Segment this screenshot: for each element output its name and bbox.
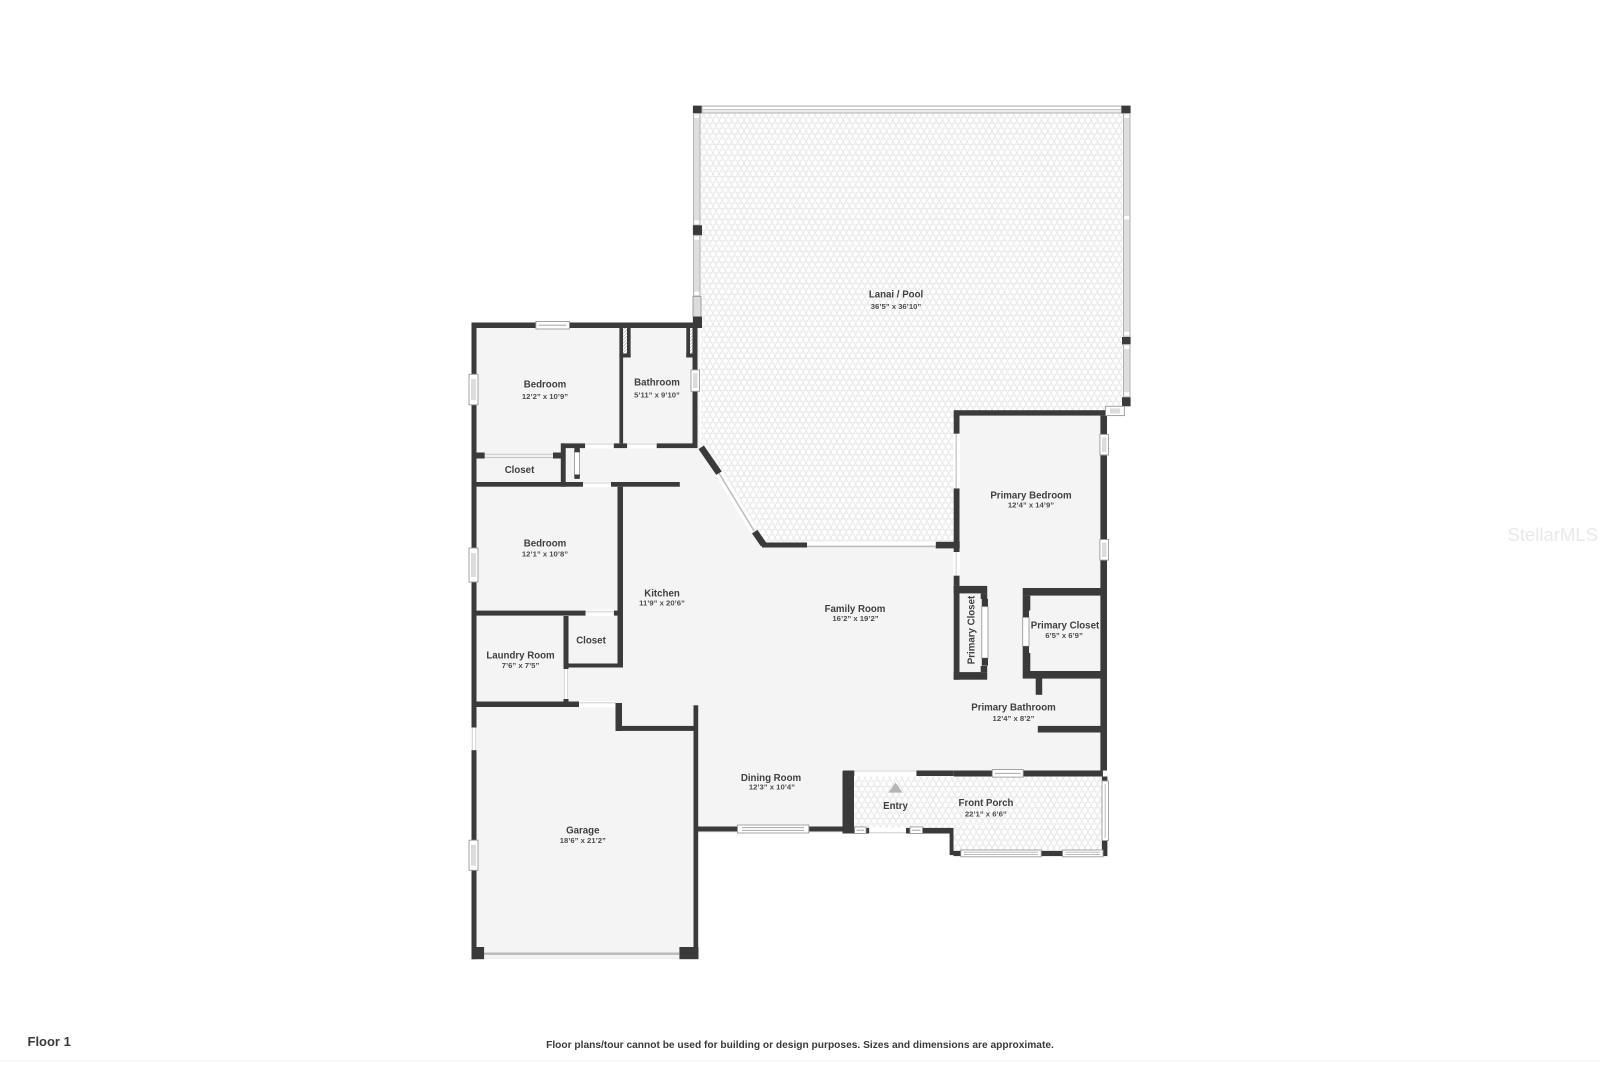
svg-text:Bedroom: Bedroom — [524, 379, 567, 390]
svg-text:Bedroom: Bedroom — [524, 539, 567, 550]
svg-text:6’5” x 6’9”: 6’5” x 6’9” — [1045, 631, 1083, 640]
svg-text:12’1” x 10’8”: 12’1” x 10’8” — [522, 550, 568, 559]
svg-text:Closet: Closet — [576, 636, 606, 647]
svg-text:36’5” x 36’10”: 36’5” x 36’10” — [871, 302, 922, 311]
svg-text:Lanai / Pool: Lanai / Pool — [869, 290, 923, 301]
svg-text:12’4” x 8’2”: 12’4” x 8’2” — [993, 714, 1035, 723]
svg-text:12’2” x 10’9”: 12’2” x 10’9” — [522, 392, 568, 401]
svg-text:16’2” x 19’2”: 16’2” x 19’2” — [832, 614, 878, 623]
svg-text:Floor plans/tour cannot be use: Floor plans/tour cannot be used for buil… — [546, 1040, 1054, 1051]
svg-text:Laundry Room: Laundry Room — [486, 651, 555, 662]
svg-text:Closet: Closet — [505, 465, 535, 476]
svg-text:Floor 1: Floor 1 — [28, 1034, 71, 1049]
svg-text:22’1” x 6’6”: 22’1” x 6’6” — [965, 809, 1007, 818]
svg-text:Bathroom: Bathroom — [634, 378, 680, 389]
svg-text:12’4” x 14’9”: 12’4” x 14’9” — [1008, 501, 1054, 510]
svg-text:5’11” x 9’10”: 5’11” x 9’10” — [634, 391, 680, 400]
svg-text:18’6” x 21’2”: 18’6” x 21’2” — [560, 836, 606, 845]
svg-text:Primary Bedroom: Primary Bedroom — [990, 490, 1072, 501]
svg-text:Front Porch: Front Porch — [959, 798, 1014, 809]
svg-text:12’3” x 10’4”: 12’3” x 10’4” — [749, 783, 795, 792]
svg-text:StellarMLS: StellarMLS — [1508, 524, 1598, 545]
svg-text:Garage: Garage — [566, 826, 600, 837]
svg-text:Primary Closet: Primary Closet — [967, 595, 978, 664]
svg-text:Entry: Entry — [883, 801, 908, 812]
svg-text:7’6” x 7’5”: 7’6” x 7’5” — [502, 661, 540, 670]
svg-text:Primary Closet: Primary Closet — [1031, 621, 1100, 632]
svg-text:Primary Bathroom: Primary Bathroom — [971, 703, 1056, 714]
svg-text:11’9” x 20’6”: 11’9” x 20’6” — [639, 599, 685, 608]
